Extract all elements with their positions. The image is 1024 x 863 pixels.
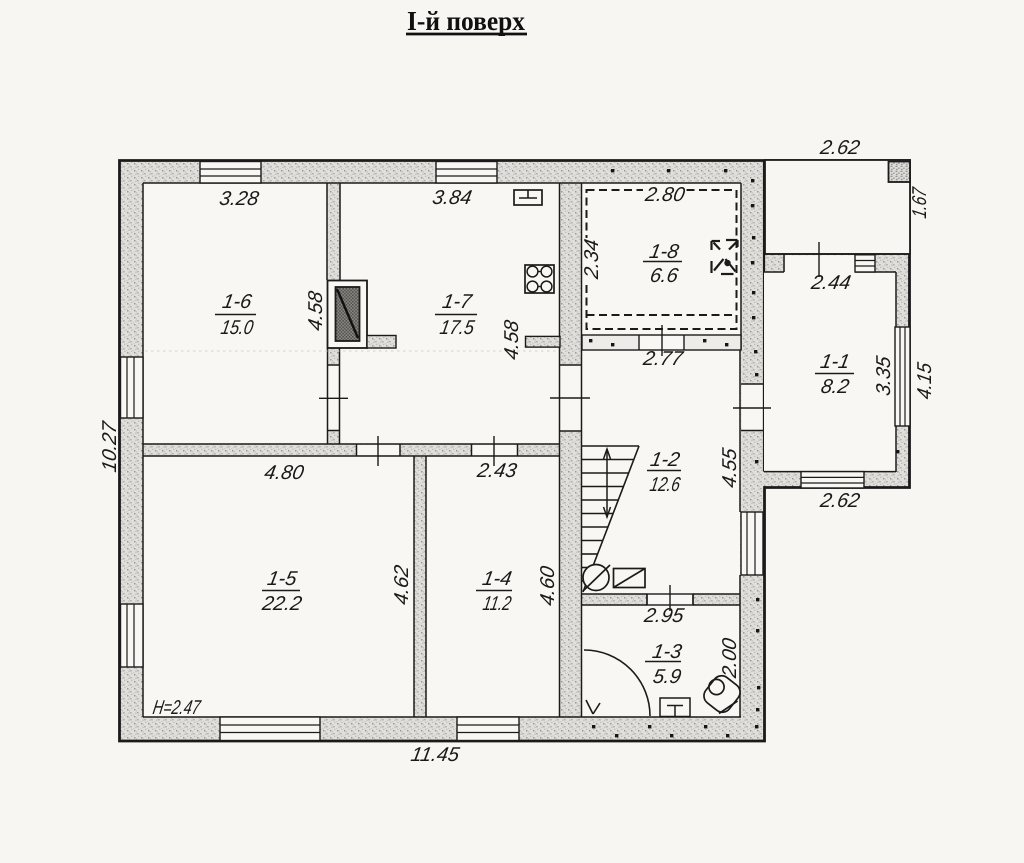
svg-text:3.28: 3.28 [218, 188, 262, 210]
svg-text:1-5: 1-5 [266, 568, 300, 590]
svg-text:4.55: 4.55 [719, 446, 741, 490]
svg-text:1-7: 1-7 [441, 291, 475, 313]
svg-text:2.62: 2.62 [818, 137, 862, 159]
svg-text:1.67: 1.67 [909, 185, 931, 219]
svg-text:І-й поверх: І-й поверх [407, 6, 525, 36]
svg-text:2.00: 2.00 [719, 636, 741, 681]
svg-text:12.6: 12.6 [648, 474, 682, 496]
svg-text:1-2: 1-2 [649, 449, 682, 471]
svg-text:11.45: 11.45 [409, 744, 462, 766]
svg-text:4.62: 4.62 [391, 564, 413, 607]
svg-text:4.58: 4.58 [305, 289, 327, 333]
svg-text:1-3: 1-3 [651, 641, 685, 663]
svg-text:2.77: 2.77 [641, 348, 686, 370]
svg-text:5.9: 5.9 [651, 666, 683, 688]
svg-text:15.0: 15.0 [219, 317, 255, 339]
svg-text:1-6: 1-6 [221, 291, 255, 313]
svg-text:2.44: 2.44 [809, 272, 853, 294]
svg-text:17.5: 17.5 [438, 317, 477, 339]
svg-text:2.34: 2.34 [581, 238, 603, 282]
svg-text:1-4: 1-4 [481, 568, 514, 590]
svg-text:1-1: 1-1 [819, 351, 852, 373]
svg-text:22.2: 22.2 [260, 593, 304, 615]
svg-text:3.84: 3.84 [431, 187, 474, 209]
svg-text:1-8: 1-8 [648, 241, 682, 263]
svg-text:4.15: 4.15 [914, 360, 936, 401]
svg-text:4.60: 4.60 [537, 564, 559, 608]
svg-text:4.58: 4.58 [501, 318, 523, 362]
svg-text:10.27: 10.27 [99, 419, 121, 474]
svg-text:H=2.47: H=2.47 [151, 697, 202, 719]
svg-text:2.62: 2.62 [818, 490, 862, 512]
svg-text:2.43: 2.43 [475, 460, 520, 482]
svg-text:3.35: 3.35 [873, 354, 895, 398]
svg-text:4.80: 4.80 [263, 462, 307, 484]
svg-text:8.2: 8.2 [819, 376, 851, 398]
svg-text:11.2: 11.2 [481, 593, 513, 615]
svg-text:6.6: 6.6 [648, 265, 680, 287]
svg-text:2.95: 2.95 [642, 605, 687, 627]
svg-text:2.80: 2.80 [643, 184, 688, 206]
